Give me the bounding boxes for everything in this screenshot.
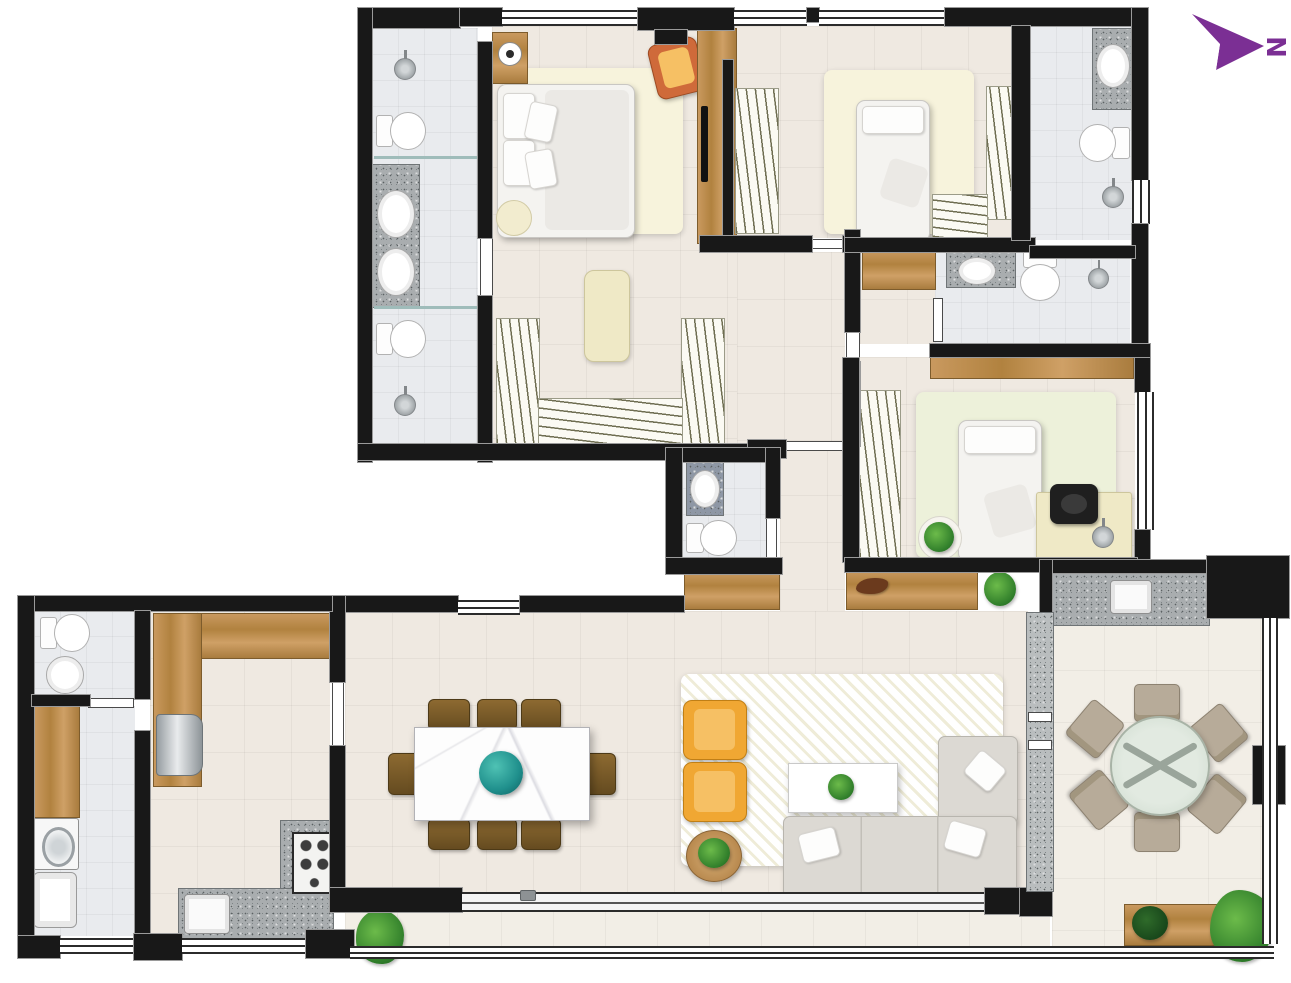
wall bbox=[1132, 8, 1148, 180]
dining-chair bbox=[521, 818, 561, 850]
vestibule-cabinet bbox=[862, 250, 936, 290]
bbq-sink bbox=[1110, 580, 1152, 614]
wall bbox=[1040, 560, 1052, 618]
north-arrow: N bbox=[1186, 8, 1291, 78]
wall bbox=[1132, 224, 1148, 346]
shower-head-icon bbox=[1102, 186, 1124, 208]
toilet bbox=[40, 612, 90, 652]
sink-basin bbox=[377, 190, 415, 238]
glass-railing bbox=[1262, 618, 1278, 944]
table-lamp-icon bbox=[498, 42, 522, 66]
wall bbox=[358, 8, 460, 28]
bed-pillow bbox=[862, 106, 924, 134]
wall bbox=[700, 236, 812, 252]
glass-partition bbox=[374, 306, 486, 309]
laundry-counter bbox=[34, 702, 80, 818]
floor-plant-icon bbox=[984, 572, 1016, 606]
hall-floor bbox=[737, 252, 845, 448]
toilet bbox=[1078, 122, 1130, 162]
wall bbox=[32, 695, 90, 706]
bathroom3-door bbox=[933, 298, 943, 342]
kitchen-sink bbox=[184, 894, 230, 934]
wall bbox=[18, 596, 34, 956]
sink-basin bbox=[46, 656, 84, 694]
wood-console bbox=[684, 572, 780, 610]
wc-door bbox=[88, 698, 134, 708]
wardrobe-hatch bbox=[538, 398, 683, 446]
wall bbox=[135, 731, 150, 938]
sliding-glass-door bbox=[462, 892, 988, 912]
washing-machine bbox=[33, 818, 79, 870]
wall bbox=[843, 358, 859, 562]
centerpiece-bowl bbox=[479, 751, 523, 795]
wall bbox=[1052, 560, 1209, 573]
wall bbox=[1135, 530, 1150, 564]
wall bbox=[666, 448, 682, 574]
wall bbox=[18, 596, 332, 611]
potted-plant-icon bbox=[924, 522, 954, 552]
toilet bbox=[376, 110, 426, 150]
floor-plan-canvas: N bbox=[0, 0, 1291, 983]
window bbox=[1132, 180, 1150, 224]
wall bbox=[18, 936, 60, 958]
corridor-door bbox=[786, 441, 846, 451]
wall bbox=[1030, 246, 1135, 258]
wall bbox=[930, 344, 1150, 357]
wall bbox=[460, 8, 502, 26]
wall bbox=[520, 596, 684, 612]
laundry-tub bbox=[33, 872, 77, 928]
dining-chair bbox=[428, 818, 470, 850]
terrace-threshold bbox=[1026, 612, 1054, 892]
wall bbox=[135, 611, 150, 699]
window bbox=[60, 938, 134, 954]
master-bathroom-door bbox=[480, 238, 493, 298]
shelf-strip bbox=[930, 357, 1134, 379]
terrace-round-table bbox=[1110, 716, 1210, 816]
north-letter: N bbox=[1260, 36, 1290, 58]
glass-railing bbox=[350, 946, 1274, 959]
window bbox=[819, 10, 945, 26]
window bbox=[1137, 392, 1154, 530]
terrace-door-frame bbox=[1028, 712, 1052, 722]
yellow-armchair bbox=[683, 762, 747, 822]
powder-room-door bbox=[766, 516, 777, 560]
coffee-table-plant-icon bbox=[828, 774, 854, 800]
wardrobe-hatch bbox=[496, 318, 540, 446]
wall bbox=[358, 8, 372, 462]
sliding-door-handle bbox=[520, 890, 536, 901]
refrigerator bbox=[156, 714, 203, 776]
wall bbox=[655, 30, 687, 44]
tv-icon bbox=[701, 106, 708, 182]
kitchen-door bbox=[332, 678, 344, 746]
wall bbox=[134, 934, 182, 960]
wall bbox=[666, 558, 782, 574]
wall bbox=[668, 448, 780, 462]
wall bbox=[478, 296, 492, 462]
wardrobe-hatch bbox=[681, 318, 725, 446]
sink-basin bbox=[377, 248, 415, 296]
bedroom2-door bbox=[810, 239, 846, 249]
planter-plant-icon bbox=[1132, 906, 1168, 940]
dining-chair bbox=[477, 818, 517, 850]
glass-partition bbox=[374, 156, 486, 159]
wall bbox=[845, 238, 1035, 252]
window bbox=[502, 10, 638, 26]
sink-basin bbox=[958, 257, 996, 285]
window bbox=[182, 938, 306, 954]
balcony-floor bbox=[345, 908, 1050, 946]
bed-pillow bbox=[964, 426, 1036, 454]
closet-ottoman bbox=[584, 270, 630, 362]
wardrobe-hatch bbox=[735, 88, 779, 234]
toilet bbox=[376, 318, 426, 358]
window bbox=[458, 600, 520, 615]
sink-basin bbox=[1096, 44, 1130, 88]
wall bbox=[1012, 26, 1030, 240]
terrace-chair bbox=[1134, 812, 1180, 852]
side-table-plant-icon bbox=[698, 838, 730, 868]
wall bbox=[330, 888, 462, 912]
wardrobe-hatch bbox=[859, 390, 901, 560]
wall bbox=[330, 746, 345, 890]
desk-lamp-icon bbox=[1092, 526, 1114, 548]
wall bbox=[306, 930, 354, 958]
window bbox=[734, 10, 807, 26]
wall bbox=[638, 8, 734, 30]
wall bbox=[1020, 888, 1052, 916]
toilet bbox=[686, 518, 738, 556]
sink-basin bbox=[690, 470, 720, 508]
wall bbox=[330, 596, 345, 682]
terrace-door-frame bbox=[1028, 740, 1052, 750]
office-chair bbox=[1050, 484, 1098, 524]
shower-head-icon bbox=[394, 394, 416, 416]
wall bbox=[478, 42, 492, 238]
shower-head-icon bbox=[394, 58, 416, 80]
wall bbox=[766, 448, 780, 518]
corridor-floor bbox=[780, 448, 845, 612]
wall bbox=[723, 60, 733, 240]
wall bbox=[807, 8, 819, 22]
wall bbox=[340, 596, 458, 612]
wall bbox=[945, 8, 1134, 26]
yellow-armchair bbox=[683, 700, 747, 760]
wall bbox=[1207, 556, 1289, 618]
round-pouf bbox=[496, 200, 532, 236]
wardrobe-hatch bbox=[932, 194, 988, 238]
shower-head-icon bbox=[1088, 268, 1109, 289]
